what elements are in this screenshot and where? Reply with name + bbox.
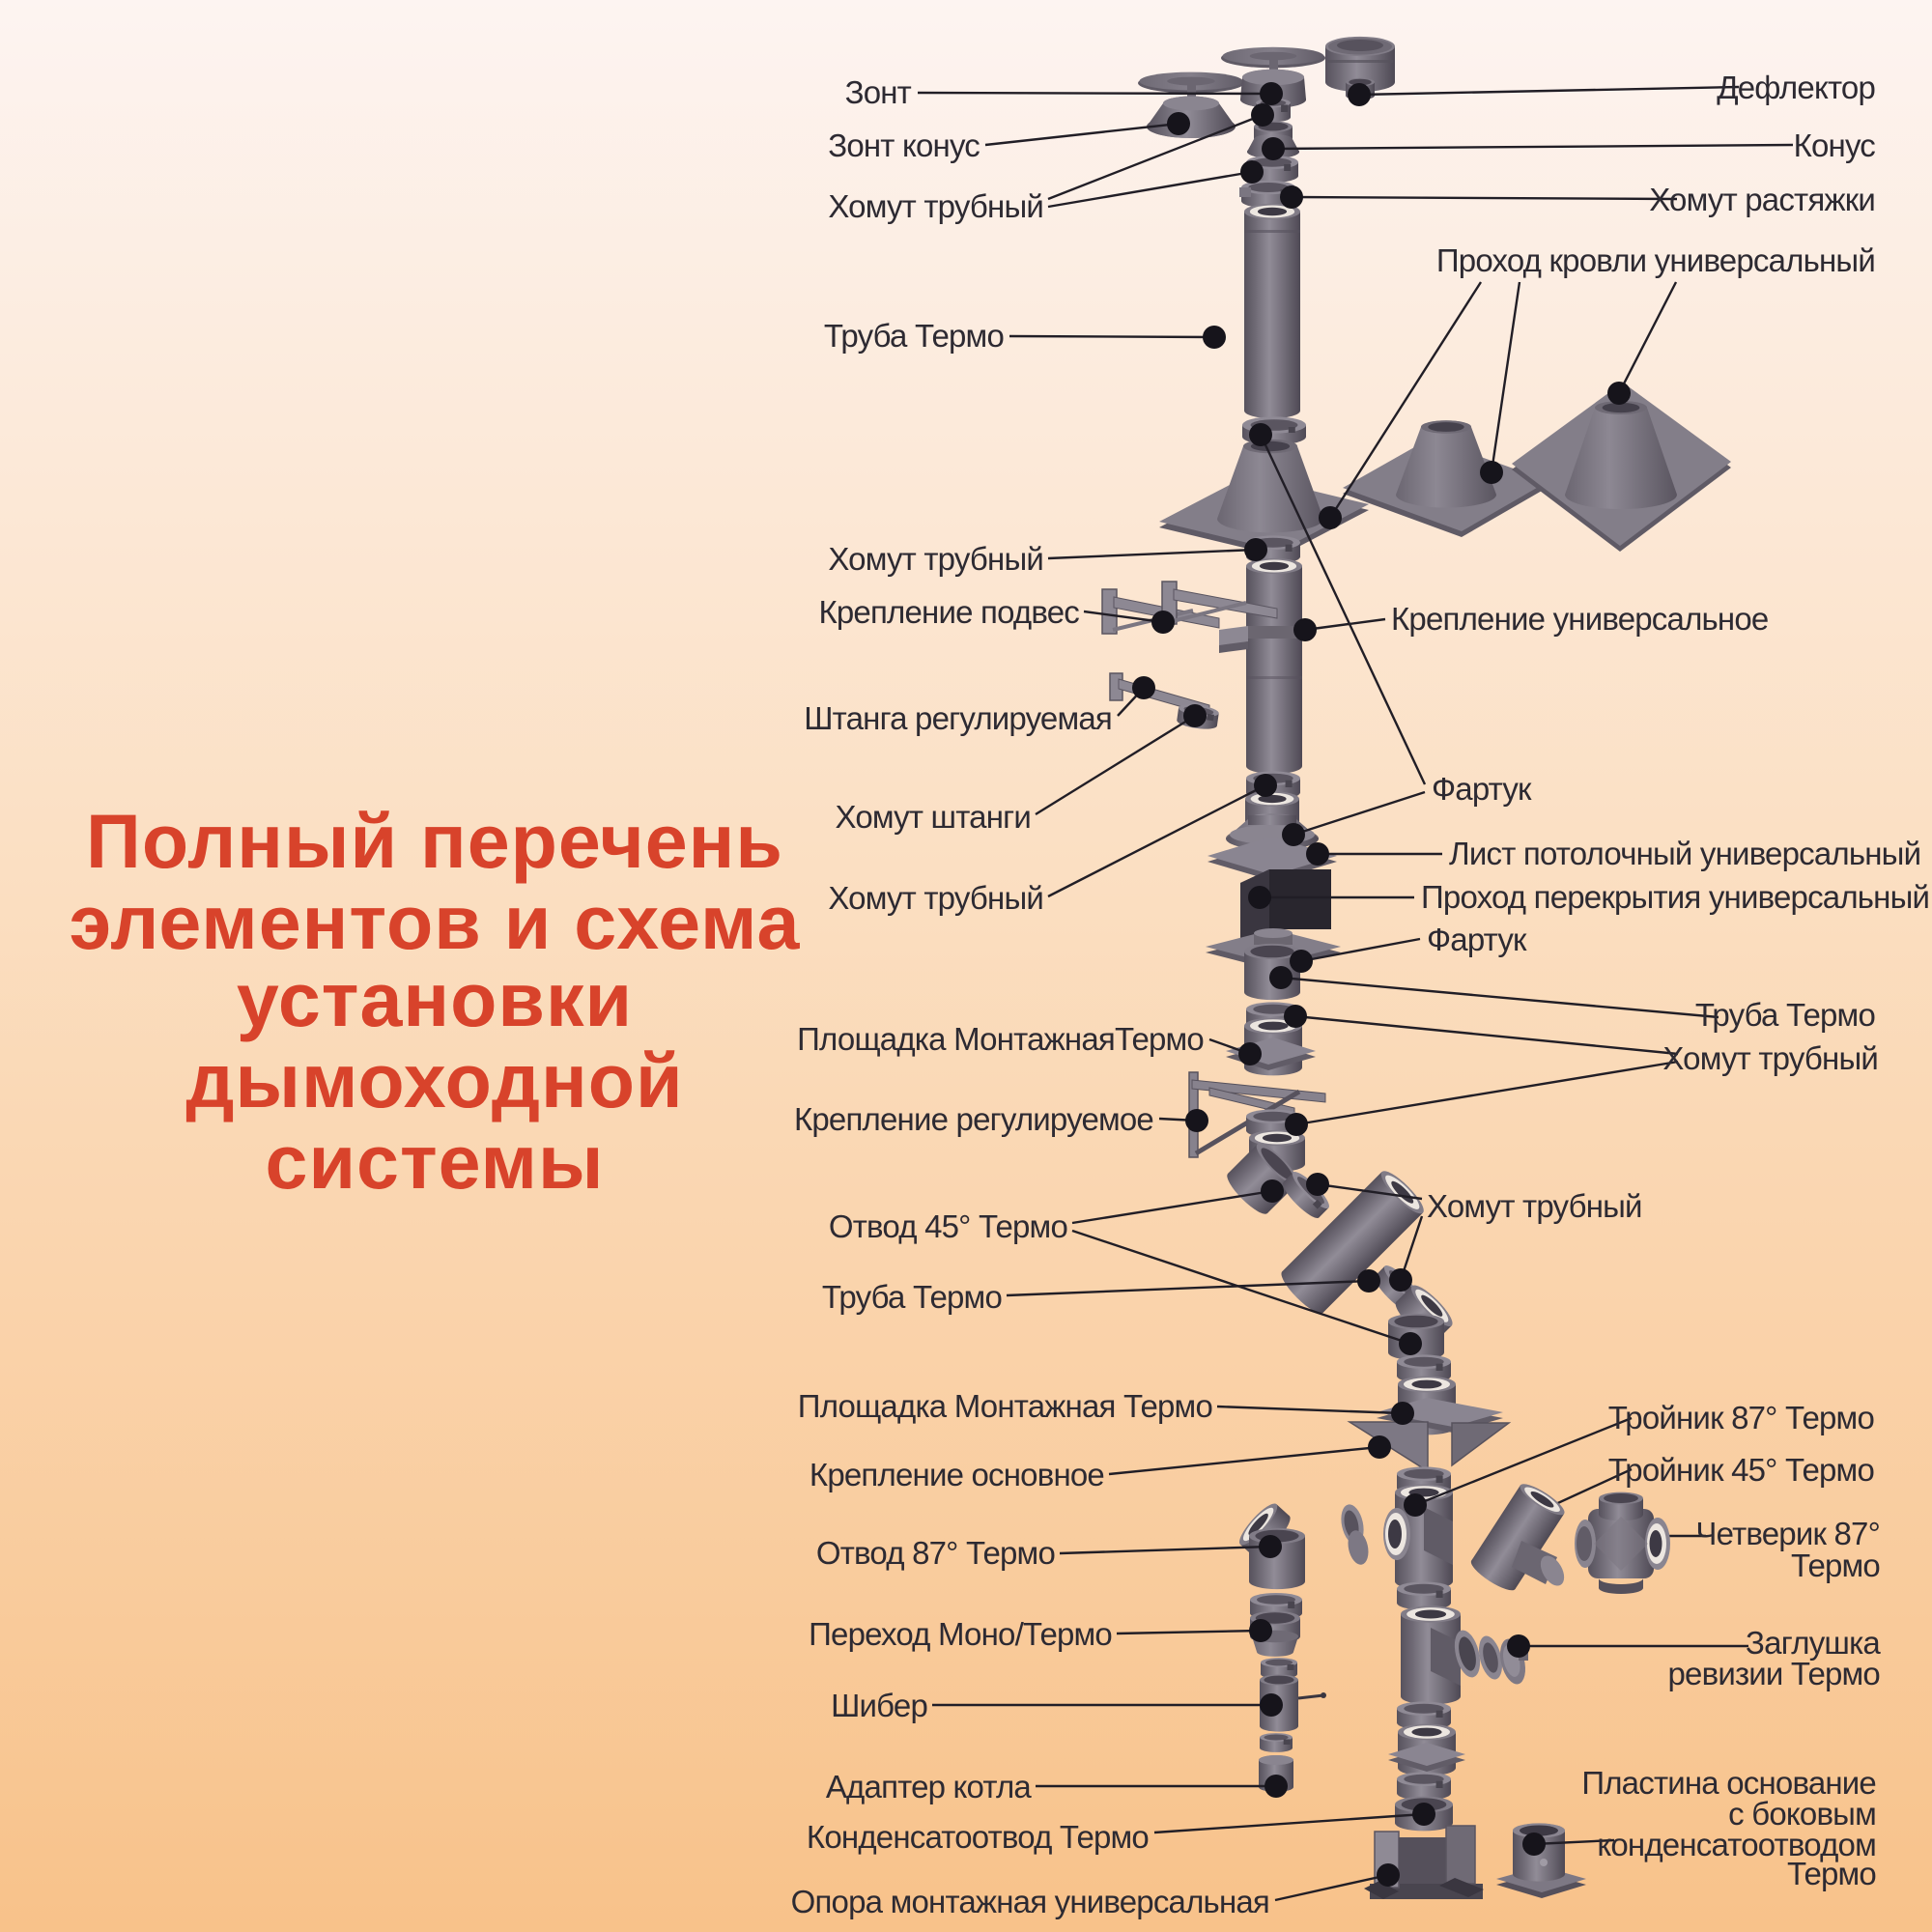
svg-text:системы: системы — [266, 1119, 605, 1205]
svg-text:Тройник 87° Термо: Тройник 87° Термо — [1608, 1400, 1874, 1435]
svg-text:Лист потолочный универсальный: Лист потолочный универсальный — [1449, 836, 1920, 871]
svg-text:Крепление регулируемое: Крепление регулируемое — [794, 1101, 1153, 1137]
svg-text:Проход кровли универсальный: Проход кровли универсальный — [1436, 242, 1875, 278]
svg-text:Дефлектор: Дефлектор — [1717, 70, 1875, 105]
svg-text:Полный перечень: Полный перечень — [86, 798, 783, 884]
svg-text:Штанга регулируемая: Штанга регулируемая — [804, 700, 1112, 736]
svg-text:Проход перекрытия универсальны: Проход перекрытия универсальный — [1421, 879, 1929, 915]
svg-text:Хомут трубный: Хомут трубный — [828, 541, 1043, 577]
svg-text:Хомут трубный: Хомут трубный — [828, 188, 1043, 224]
svg-text:Фартук: Фартук — [1427, 922, 1527, 957]
svg-text:Хомут трубный: Хомут трубный — [1427, 1188, 1642, 1224]
svg-text:Адаптер котла: Адаптер котла — [826, 1769, 1033, 1804]
svg-text:Термо: Термо — [1787, 1856, 1876, 1891]
svg-text:Зонт конус: Зонт конус — [828, 128, 980, 163]
svg-text:элементов и схема: элементов и схема — [70, 879, 801, 965]
svg-text:Крепление подвес: Крепление подвес — [818, 594, 1079, 630]
svg-text:Хомут трубный: Хомут трубный — [828, 880, 1043, 916]
svg-text:Зонт: Зонт — [845, 74, 912, 110]
svg-text:Конденсатоотвод Термо: Конденсатоотвод Термо — [807, 1819, 1149, 1855]
svg-text:Крепление универсальное: Крепление универсальное — [1391, 601, 1768, 637]
svg-text:Труба Термо: Труба Термо — [822, 1279, 1002, 1315]
svg-text:дымоходной: дымоходной — [185, 1037, 683, 1123]
svg-text:ревизии Термо: ревизии Термо — [1668, 1656, 1881, 1691]
svg-text:Опора монтажная универсальная: Опора монтажная универсальная — [791, 1884, 1269, 1919]
svg-text:Фартук: Фартук — [1432, 771, 1532, 807]
svg-text:Тройник 45° Термо: Тройник 45° Термо — [1608, 1452, 1874, 1488]
svg-text:Отвод 87° Термо: Отвод 87° Термо — [816, 1535, 1055, 1571]
svg-text:Шибер: Шибер — [831, 1688, 927, 1723]
svg-text:Площадка МонтажнаяТермо: Площадка МонтажнаяТермо — [797, 1021, 1204, 1057]
svg-text:Труба Термо: Труба Термо — [1695, 997, 1875, 1033]
svg-text:Четверик 87°: Четверик 87° — [1695, 1516, 1880, 1551]
svg-text:Труба Термо: Труба Термо — [824, 318, 1004, 354]
svg-text:Термо: Термо — [1791, 1548, 1880, 1583]
svg-text:Переход Моно/Термо: Переход Моно/Термо — [809, 1616, 1112, 1652]
svg-text:установки: установки — [237, 956, 633, 1042]
svg-text:Крепление основное: Крепление основное — [810, 1457, 1104, 1492]
svg-text:Хомут растяжки: Хомут растяжки — [1649, 182, 1875, 217]
svg-text:Отвод 45° Термо: Отвод 45° Термо — [829, 1208, 1067, 1244]
svg-text:Хомут штанги: Хомут штанги — [836, 799, 1032, 835]
svg-text:Конус: Конус — [1794, 128, 1876, 163]
svg-text:Площадка Монтажная Термо: Площадка Монтажная Термо — [798, 1388, 1212, 1424]
svg-text:Хомут трубный: Хомут трубный — [1662, 1040, 1878, 1076]
